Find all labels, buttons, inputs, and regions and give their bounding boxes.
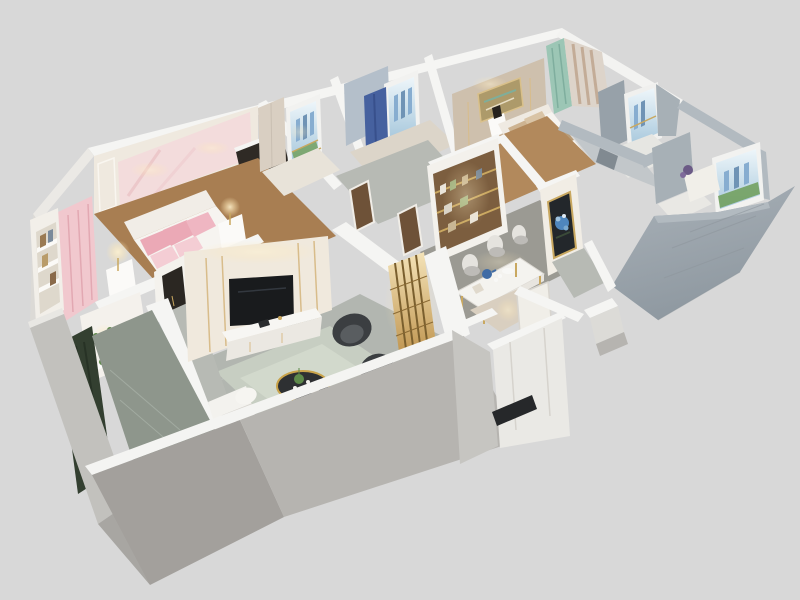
window-city-tower: [401, 90, 405, 119]
wall-sconce-glow: [194, 141, 230, 155]
vestibule-glow: [496, 298, 520, 322]
wall-sconce-glow: [130, 162, 170, 178]
painting-petal: [562, 214, 566, 218]
blue-teapot: [482, 269, 492, 279]
bookshelf-glow: [442, 161, 490, 229]
floorplan-svg: [0, 0, 800, 600]
painting-petal: [564, 226, 569, 231]
painting-petal: [556, 217, 561, 222]
window-city-tower: [724, 170, 729, 192]
floorplan-render: [0, 0, 800, 600]
tv-wall-spotlights: [196, 240, 320, 264]
niche-book: [48, 229, 53, 243]
dining-chair-seat: [514, 236, 528, 245]
purple-plant: [680, 172, 686, 178]
plate: [502, 268, 514, 274]
table-plant: [294, 374, 304, 384]
teacup: [494, 278, 498, 282]
window-city-tower: [408, 87, 412, 115]
bath-glow: [290, 124, 310, 140]
dining-chair-seat: [464, 266, 480, 276]
teacup: [498, 274, 502, 278]
window-city-tower: [734, 166, 739, 189]
dining-chair-seat: [489, 247, 505, 257]
window-city-tower: [394, 94, 398, 122]
window-city-tower: [310, 111, 314, 136]
console-ornament: [278, 316, 282, 320]
window-city-tower: [744, 162, 749, 185]
